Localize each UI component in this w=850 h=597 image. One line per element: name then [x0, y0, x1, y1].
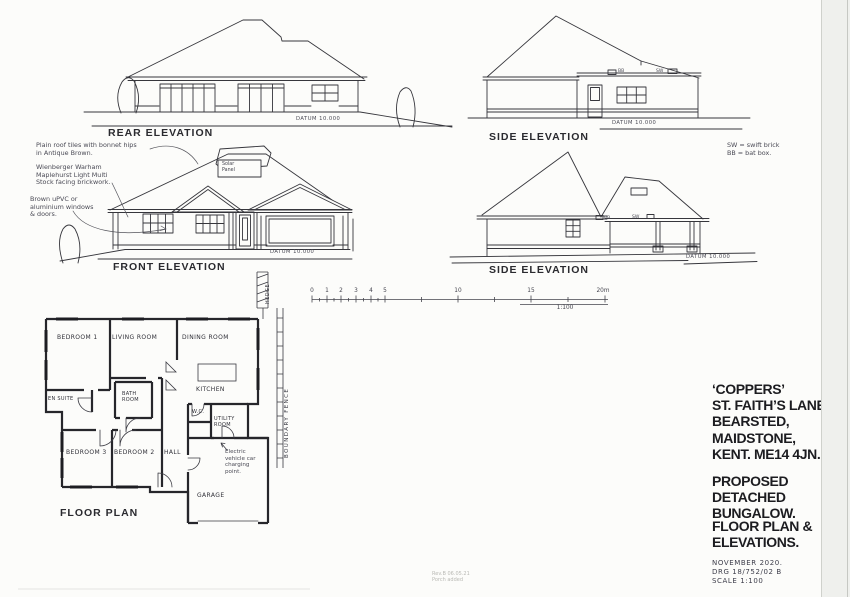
room-label-garage: GARAGE [197, 492, 225, 499]
room-label-wc: W.C. [192, 409, 204, 415]
revision-note: Rev.B 06.05.21 Porch added [432, 571, 470, 583]
legend-note: SW = swift brick BB = bat box. [727, 142, 779, 157]
bat-box-mark [608, 70, 616, 75]
boundary-fence-label: BOUNDARY FENCE [284, 388, 290, 458]
scale-tick: 2 [339, 288, 343, 294]
rear-datum-label: DATUM 10.000 [296, 116, 340, 122]
scale-tick: 4 [369, 288, 373, 294]
scale-tick: 5 [383, 288, 387, 294]
ev-charging-note: Electric vehicle car charging point. [225, 449, 256, 475]
side-lower-elevation-title: SIDE ELEVATION [489, 264, 589, 276]
room-label-bedroom1: BEDROOM 1 [57, 334, 98, 341]
drawing-sheet: REAR ELEVATION DATUM 10.000 SIDE ELEVATI… [0, 0, 850, 597]
scale-tick: 3 [354, 288, 358, 294]
scale-tick: 0 [310, 288, 314, 294]
room-label-bathroom: BATH ROOM [122, 391, 139, 403]
floor-plan-details [78, 362, 258, 521]
windows-note: Brown uPVC or aluminium windows & doors. [30, 196, 93, 219]
side-lower-datum-label: DATUM 10.000 [686, 254, 730, 260]
bat-box-label: BB [604, 216, 610, 221]
sheet-edge-line [847, 0, 848, 597]
swift-brick-label: SW [656, 69, 663, 74]
room-label-ensuite: EN SUITE [48, 396, 73, 402]
side-elevation-upper-drawing [468, 16, 750, 129]
scale-tick: 1 [325, 288, 329, 294]
room-label-hall: HALL [164, 449, 181, 456]
side-upper-elevation-title: SIDE ELEVATION [489, 131, 589, 143]
scale-bar-drawing [312, 296, 608, 305]
side-elevation-lower-drawing [450, 152, 757, 264]
scale-tick: 10 [454, 288, 461, 294]
shrub [397, 88, 416, 127]
double-door-symbol [166, 362, 176, 390]
swift-brick-label: SW [632, 215, 639, 220]
scale-tick: 20m [596, 288, 609, 294]
room-label-bedroom2: BEDROOM 2 [114, 449, 155, 456]
scale-ratio-label: 1:100 [557, 305, 574, 311]
floor-plan-title: FLOOR PLAN [60, 507, 138, 519]
rear-elevation-title: REAR ELEVATION [108, 127, 213, 139]
room-label-dining: DINING ROOM [182, 334, 229, 341]
side-upper-datum-label: DATUM 10.000 [612, 120, 656, 126]
sheet-edge [821, 0, 850, 597]
scale-tick: 15 [527, 288, 534, 294]
room-label-living: LIVING ROOM [112, 334, 157, 341]
swift-brick-mark [647, 215, 654, 219]
roof-tiles-note: Plain roof tiles with bonnet hips in Ant… [36, 142, 137, 157]
room-label-bedroom3: BEDROOM 3 [66, 449, 107, 456]
room-label-kitchen: KITCHEN [196, 386, 225, 393]
shrub [60, 225, 80, 263]
brickwork-note: Wienberger Warham Maplehurst Light Multi… [36, 164, 110, 187]
room-label-utility: UTILITY ROOM [214, 416, 235, 428]
garage-door [266, 216, 334, 246]
front-datum-label: DATUM 10.000 [270, 249, 314, 255]
hedge-label: HEDGE [266, 284, 271, 304]
front-elevation-title: FRONT ELEVATION [113, 261, 226, 273]
bat-box-label: BB [618, 69, 624, 74]
kitchen-island [198, 364, 236, 381]
solar-panel-label: Solar Panel [222, 162, 235, 174]
rear-elevation-drawing [84, 20, 452, 127]
note-leader-lines [73, 146, 198, 233]
